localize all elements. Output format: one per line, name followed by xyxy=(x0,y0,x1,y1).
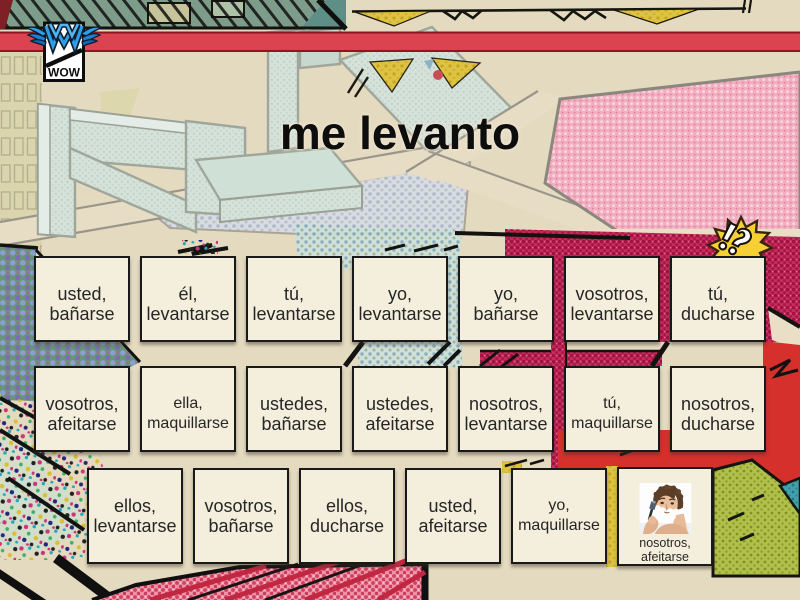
svg-text:WOW: WOW xyxy=(48,66,81,80)
